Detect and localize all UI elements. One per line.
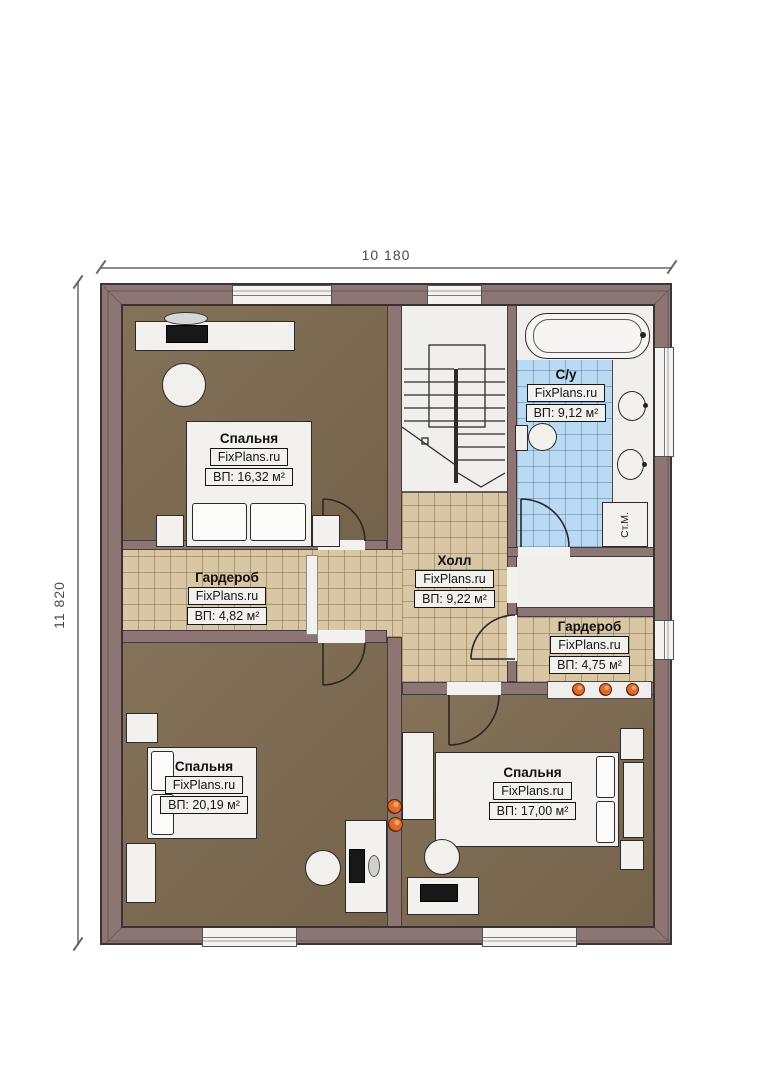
pillow <box>250 503 306 541</box>
printer-icon <box>164 312 208 325</box>
room-area: ВП: 9,22 м² <box>414 590 495 608</box>
room-label-bedroom-bottom-left: Спальня FixPlans.ru ВП: 20,19 м² <box>150 759 258 814</box>
bathtub-drain <box>640 332 646 338</box>
nightstand <box>312 515 340 547</box>
room-name: Холл <box>438 553 472 568</box>
dimension-line-top <box>100 267 672 269</box>
bathtub-inner <box>533 319 642 353</box>
room-area: ВП: 17,00 м² <box>489 802 577 820</box>
room-label-bathroom: С/у FixPlans.ru ВП: 9,12 м² <box>520 367 612 422</box>
brand-watermark: FixPlans.ru <box>188 587 267 605</box>
room-label-wardrobe-left: Гардероб FixPlans.ru ВП: 4,82 м² <box>152 570 302 625</box>
spotlight-icon <box>626 683 639 696</box>
room-area: ВП: 16,32 м² <box>205 468 293 486</box>
dresser <box>126 843 156 903</box>
spotlight-icon <box>572 683 585 696</box>
nightstand <box>156 515 184 547</box>
room-name: Спальня <box>220 431 278 446</box>
brand-watermark: FixPlans.ru <box>493 782 572 800</box>
faucet-dot <box>643 403 648 408</box>
vent-icon <box>387 799 402 814</box>
room-name: С/у <box>555 367 576 382</box>
wardrobe-cabinet <box>402 732 434 820</box>
room-name: Гардероб <box>195 570 259 585</box>
nightstand <box>620 840 644 870</box>
staircase <box>402 345 505 487</box>
room-label-wardrobe-right: Гардероб FixPlans.ru ВП: 4,75 м² <box>527 619 652 674</box>
vent-icon <box>388 817 403 832</box>
brand-watermark: FixPlans.ru <box>210 448 289 466</box>
computer-monitor-icon <box>349 849 365 883</box>
floorplan-canvas: 10 180 11 820 <box>0 0 763 1080</box>
brand-watermark: FixPlans.ru <box>165 776 244 794</box>
spotlight-icon <box>599 683 612 696</box>
brand-watermark: FixPlans.ru <box>550 636 629 654</box>
office-chair <box>424 839 460 875</box>
keyboard-icon <box>368 855 380 877</box>
office-chair <box>162 363 206 407</box>
room-label-hall: Холл FixPlans.ru ВП: 9,22 м² <box>402 553 507 608</box>
printer-icon <box>166 325 208 343</box>
pillow <box>192 503 247 541</box>
nightstand <box>126 713 158 743</box>
nightstand <box>620 728 644 760</box>
room-label-bedroom-bottom-right: Спальня FixPlans.ru ВП: 17,00 м² <box>460 765 605 820</box>
room-area: ВП: 20,19 м² <box>160 796 248 814</box>
toilet-tank <box>515 425 528 451</box>
room-name: Спальня <box>175 759 233 774</box>
brand-watermark: FixPlans.ru <box>527 384 606 402</box>
washing-machine: Ст.М. <box>602 502 648 547</box>
desk <box>135 321 295 351</box>
wardrobe-cabinet <box>623 762 644 838</box>
toilet-icon <box>528 423 557 451</box>
room-area: ВП: 9,12 м² <box>526 404 607 422</box>
office-chair <box>305 850 341 886</box>
dimension-width-label: 10 180 <box>336 247 436 263</box>
room-name: Спальня <box>503 765 561 780</box>
dimension-height-label: 11 820 <box>51 570 69 640</box>
room-area: ВП: 4,82 м² <box>187 607 268 625</box>
sink <box>618 391 646 421</box>
room-area: ВП: 4,75 м² <box>549 656 630 674</box>
washing-machine-label: Ст.М. <box>619 512 631 538</box>
room-name: Гардероб <box>558 619 622 634</box>
dimension-line-left <box>77 283 79 945</box>
room-label-bedroom-top-left: Спальня FixPlans.ru ВП: 16,32 м² <box>184 431 314 486</box>
sink <box>617 449 644 480</box>
floorplan: Ст.М. Спальня FixPlans.ru ВП: 16,3 <box>100 283 672 945</box>
brand-watermark: FixPlans.ru <box>415 570 494 588</box>
faucet-dot <box>642 462 647 467</box>
computer-monitor-icon <box>420 884 458 902</box>
